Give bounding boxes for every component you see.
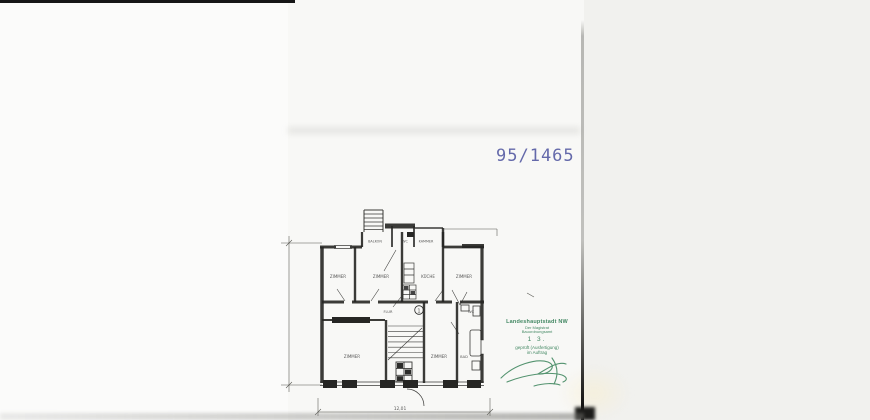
stair-core	[396, 362, 412, 382]
stamp-office-line: Bauordnungsamt	[493, 330, 581, 335]
room-lower-left-label: ZIMMER	[344, 354, 360, 359]
file-number-stamp: 95/1465	[496, 146, 575, 166]
signature	[494, 352, 582, 394]
signature-stroke	[501, 358, 566, 386]
paper-fold-line	[581, 20, 584, 420]
dimension-label: 12,01	[394, 406, 407, 412]
room-upper-left-label: ZIMMER	[330, 274, 346, 279]
bath-fixtures	[461, 305, 481, 370]
balcony-stair	[364, 210, 383, 232]
paper-left-area	[0, 0, 288, 420]
scanned-plan-page: 95/1465	[0, 0, 870, 420]
kitchen-fixtures	[403, 263, 416, 299]
entrance-door-arc	[407, 389, 424, 406]
paper-right-area	[584, 0, 870, 420]
scan-artifact-streak	[288, 127, 580, 134]
kitchen-label: KÜCHE	[421, 274, 435, 279]
scan-top-edge	[0, 0, 295, 3]
bath-label: BAD	[460, 355, 468, 359]
approval-stamp: Landeshauptstadt NW Der Magistrat Bauord…	[493, 319, 581, 356]
stair-treads	[388, 326, 423, 360]
radiator	[332, 317, 370, 323]
room-upper-mid-label: ZIMMER	[373, 274, 389, 279]
scan-bottom-shadow	[0, 413, 584, 420]
room-lower-mid-label: ZIMMER	[431, 354, 447, 359]
stair-number: 1	[417, 308, 420, 314]
wc-top-label: WC	[402, 240, 408, 244]
wc-mid-label: WC	[468, 310, 475, 314]
stamp-date-line: 1 3.	[493, 336, 581, 344]
balcony-label: BALKON	[368, 240, 382, 244]
room-upper-right-label: ZIMMER	[456, 274, 472, 279]
hall-label: FLUR	[383, 310, 393, 314]
chamber-label: KAMMER	[419, 240, 434, 244]
